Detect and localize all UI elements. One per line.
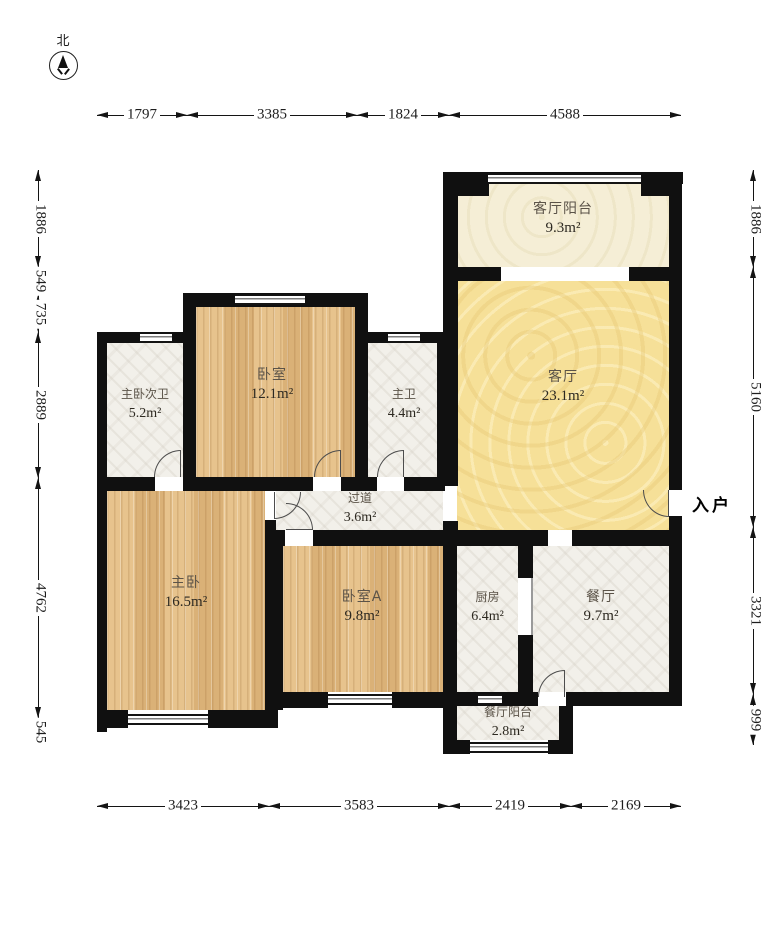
- wall: [97, 477, 155, 491]
- wall: [265, 546, 283, 710]
- label-dining-balcony: 餐厅阳台 2.8m²: [452, 703, 564, 741]
- dim-top-3: 1824: [357, 115, 449, 116]
- label-balcony-top: 客厅阳台 9.3m²: [493, 200, 633, 238]
- dim-left-2: 549: [38, 267, 39, 295]
- wall: [313, 530, 461, 546]
- compass-needle-icon: [58, 55, 68, 68]
- dim-left-3: 735: [38, 295, 39, 332]
- north-compass: 北: [40, 30, 86, 80]
- dim-right-4: 999: [753, 694, 754, 745]
- window: [328, 694, 392, 705]
- wall: [566, 692, 682, 706]
- label-living: 客厅 23.1m²: [493, 368, 633, 406]
- dim-bottom-4: 2169: [571, 806, 681, 807]
- wall: [265, 530, 285, 546]
- wall: [443, 740, 470, 754]
- window: [488, 173, 641, 184]
- door-kitchen-line: [531, 578, 533, 635]
- wall: [183, 477, 313, 491]
- entrance-label: 入户: [692, 491, 732, 516]
- dim-right-3: 3321: [753, 527, 754, 694]
- label-bedroom-a: 卧室A 9.8m²: [292, 588, 432, 626]
- window: [235, 294, 305, 305]
- wall: [548, 740, 573, 754]
- dim-left-1: 1886: [38, 170, 39, 267]
- wall: [572, 530, 682, 546]
- floor-plan: 北: [0, 0, 779, 927]
- dim-bottom-3: 2419: [449, 806, 571, 807]
- label-master-bedroom: 主卧 16.5m²: [116, 574, 256, 612]
- window: [140, 332, 172, 343]
- dim-top-2: 3385: [187, 115, 357, 116]
- wall: [518, 546, 533, 578]
- dim-bottom-1: 3423: [97, 806, 269, 807]
- label-dining: 餐厅 9.7m²: [541, 588, 661, 626]
- window: [470, 742, 548, 753]
- dim-left-5: 4762: [38, 478, 39, 718]
- wall: [669, 172, 682, 490]
- wall: [208, 710, 278, 728]
- window: [388, 332, 420, 343]
- dim-bottom-2: 3583: [269, 806, 449, 807]
- label-bedroom: 卧室 12.1m²: [202, 366, 342, 404]
- north-label: 北: [40, 30, 86, 49]
- wall: [97, 710, 128, 728]
- label-master-bath: 主卫 4.4m²: [366, 385, 442, 423]
- wall: [278, 692, 328, 708]
- wall: [629, 267, 682, 281]
- label-master-bath2: 主卧次卫 5.2m²: [103, 385, 187, 423]
- wall: [518, 635, 533, 692]
- window: [128, 714, 208, 725]
- label-kitchen: 厨房 6.4m²: [450, 588, 525, 626]
- dim-right-1: 1886: [753, 170, 754, 267]
- label-hallway: 过道 3.6m²: [302, 489, 418, 527]
- compass-ring-icon: [49, 51, 78, 80]
- dim-top-4: 4588: [449, 115, 681, 116]
- dim-right-2: 5160: [753, 267, 754, 527]
- dim-left-6: 545: [38, 718, 39, 745]
- dim-top-1: 1797: [97, 115, 187, 116]
- dim-left-4: 2889: [38, 332, 39, 478]
